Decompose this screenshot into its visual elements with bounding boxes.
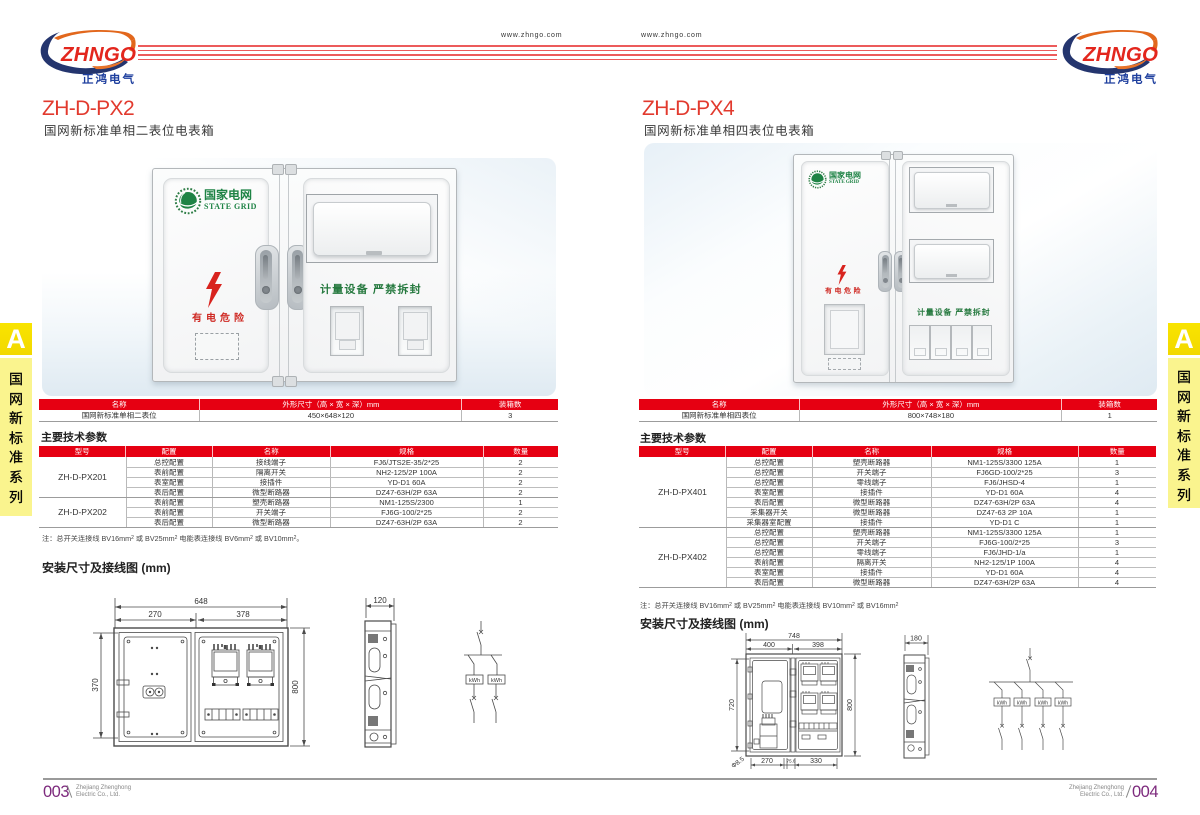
svg-text:120: 120 <box>373 596 387 605</box>
svg-text:378: 378 <box>236 610 250 619</box>
svg-text:kWh: kWh <box>1058 701 1068 707</box>
svg-text:ZHNGO: ZHNGO <box>1082 43 1158 66</box>
svg-text:kWh: kWh <box>997 701 1007 707</box>
svg-text:800: 800 <box>291 680 300 694</box>
svg-text:kWh: kWh <box>1038 701 1048 707</box>
svg-text:Φ8.5: Φ8.5 <box>730 755 746 770</box>
svg-text:kWh: kWh <box>469 678 480 684</box>
svg-text:kWh: kWh <box>491 678 502 684</box>
svg-text:370: 370 <box>91 678 100 692</box>
svg-text:kWh: kWh <box>1017 701 1027 707</box>
svg-text:648: 648 <box>194 597 208 606</box>
svg-text:270: 270 <box>148 610 162 619</box>
svg-text:400: 400 <box>763 642 775 649</box>
svg-text:ZHNGO: ZHNGO <box>60 43 136 66</box>
svg-text:748: 748 <box>788 633 800 640</box>
svg-text:720: 720 <box>729 699 736 711</box>
svg-text:180: 180 <box>910 636 922 643</box>
svg-text:398: 398 <box>812 642 824 649</box>
svg-text:800: 800 <box>847 699 854 711</box>
svg-text:270: 270 <box>761 758 773 765</box>
svg-text:330: 330 <box>810 758 822 765</box>
svg-text:75.6: 75.6 <box>787 759 796 764</box>
